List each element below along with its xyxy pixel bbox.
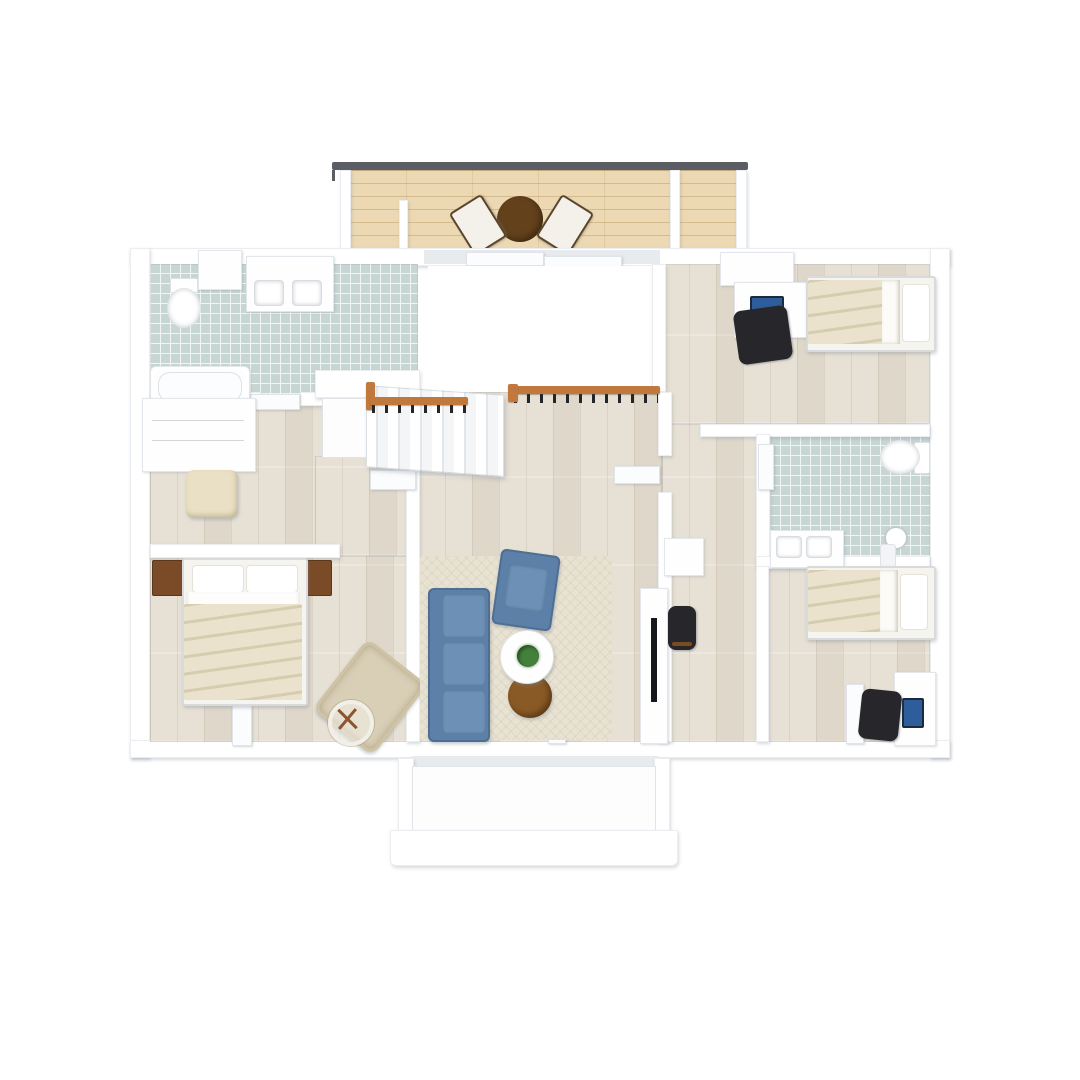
master-bed-pillow-left xyxy=(192,565,244,593)
bottom-balcony-parapet xyxy=(390,830,678,866)
hall-shelf xyxy=(664,538,704,576)
wall-void-bedroomTR xyxy=(652,264,666,392)
stair-balusters xyxy=(372,404,466,413)
bathroomR-toilet xyxy=(880,440,920,474)
bottom-balcony-threshold xyxy=(412,756,658,766)
wall-hall-bedroomBR xyxy=(756,566,769,742)
void-railing-post xyxy=(508,384,518,402)
stair-landing xyxy=(322,398,368,458)
closet-ottoman xyxy=(186,470,238,518)
bathroomTL-sink-right xyxy=(292,280,322,306)
bedroomBR-sheet-fold xyxy=(880,570,898,632)
master-bed-pillow-right xyxy=(246,565,298,593)
hall-stool xyxy=(668,606,696,650)
wall-bedroomTR-bathroom xyxy=(700,424,930,437)
hallway-floor xyxy=(662,424,762,742)
bottom-balcony-floor xyxy=(412,766,656,836)
void-railing-balusters xyxy=(514,393,658,403)
sofa-cushion-1 xyxy=(442,594,486,638)
sofa-cushion-2 xyxy=(442,642,486,686)
living-coffee-table xyxy=(500,630,554,684)
bedroomTR-office-chair xyxy=(733,305,794,366)
bathroomR-sink-left xyxy=(776,536,802,558)
living-sofa xyxy=(428,588,490,742)
armchair-cushion xyxy=(503,563,549,612)
door-bathroomR xyxy=(758,444,774,490)
door-bathroomTL xyxy=(250,394,300,410)
door-closet-hall xyxy=(370,470,416,490)
wall-closet-master xyxy=(150,544,340,558)
void-railing-handrail xyxy=(510,386,660,394)
master-floor-fan xyxy=(328,700,374,746)
living-plant xyxy=(517,645,539,667)
bathroomR-sink-right xyxy=(806,536,832,558)
bathroomTL-toilet xyxy=(167,288,201,328)
bedroomBR-monitor xyxy=(902,698,924,728)
hall-stool-base xyxy=(672,642,692,646)
balcony-railing xyxy=(332,162,748,170)
master-nightstand-left xyxy=(152,560,184,596)
bathroomTL-sink-left xyxy=(254,280,284,306)
wall-tv xyxy=(651,618,657,702)
bedroomTR-sheet-fold xyxy=(882,280,900,344)
stair-void-open-to-below xyxy=(428,266,654,390)
master-bed xyxy=(182,558,308,706)
bedroomTR-blanket xyxy=(808,280,886,344)
floor-plan-canvas xyxy=(0,0,1080,1080)
exterior-wall-left xyxy=(130,248,150,758)
wall-living-hall-upper xyxy=(658,392,672,456)
bedroomBR-pillow xyxy=(900,574,928,630)
bathroomR-shower-stem xyxy=(880,544,896,568)
bedroomTR-pillow xyxy=(902,284,930,342)
balcony-door-leaf-left xyxy=(466,252,544,266)
bedroomTR-dresser xyxy=(720,252,794,286)
closet-shelf-line-2 xyxy=(152,440,244,441)
bedroomBR-blanket xyxy=(808,570,884,632)
bedroomBR-office-chair xyxy=(857,688,902,742)
door-bedroomTR xyxy=(614,466,660,484)
closet-shelf-line-1 xyxy=(152,420,244,421)
master-bed-duvet xyxy=(184,604,302,700)
bathroomTL-wall-cabinet xyxy=(198,250,242,290)
stair-handrail xyxy=(370,397,468,405)
bedroomTR-bed xyxy=(806,276,936,352)
closet-wardrobe xyxy=(142,398,256,472)
sofa-cushion-3 xyxy=(442,690,486,734)
bedroomBR-bed xyxy=(806,566,936,640)
living-armchair xyxy=(491,548,561,632)
